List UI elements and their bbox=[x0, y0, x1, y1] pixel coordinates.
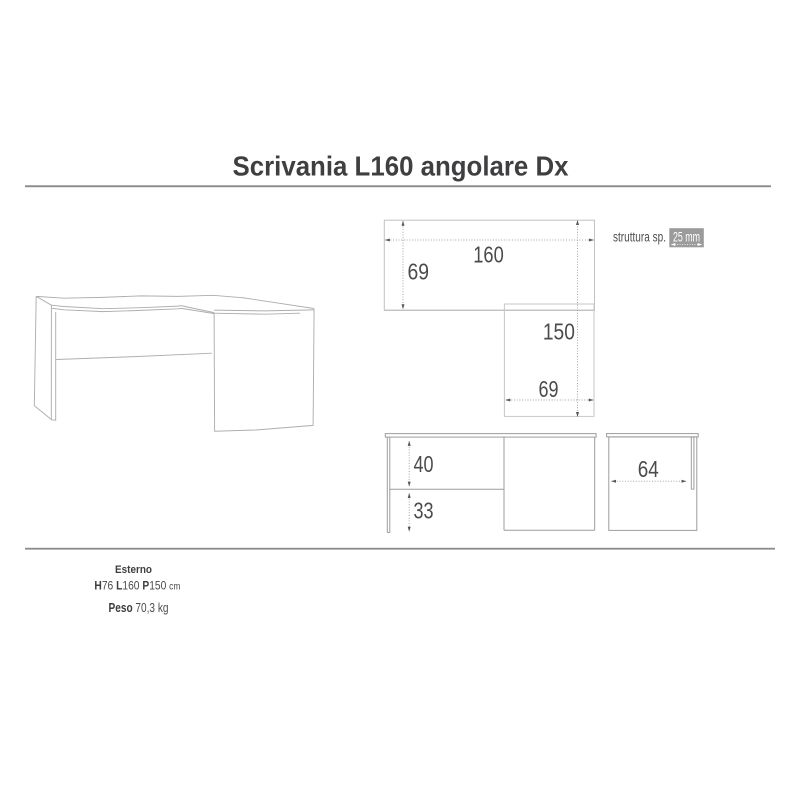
svg-text:Scrivania L160 angolare Dx: Scrivania L160 angolare Dx bbox=[233, 150, 569, 181]
svg-text:H76 L160 P150 cm: H76 L160 P150 cm bbox=[94, 578, 180, 592]
svg-text:69: 69 bbox=[539, 376, 559, 402]
svg-text:160: 160 bbox=[473, 242, 504, 268]
svg-text:69: 69 bbox=[407, 259, 429, 285]
svg-text:33: 33 bbox=[414, 498, 434, 524]
svg-text:Esterno: Esterno bbox=[115, 564, 152, 576]
svg-text:64: 64 bbox=[638, 456, 659, 482]
svg-text:150: 150 bbox=[543, 319, 575, 345]
svg-text:25 mm: 25 mm bbox=[673, 230, 700, 245]
svg-text:40: 40 bbox=[414, 451, 434, 477]
svg-text:Peso 70,3 kg: Peso 70,3 kg bbox=[109, 600, 169, 615]
svg-text:struttura sp.: struttura sp. bbox=[613, 229, 666, 244]
